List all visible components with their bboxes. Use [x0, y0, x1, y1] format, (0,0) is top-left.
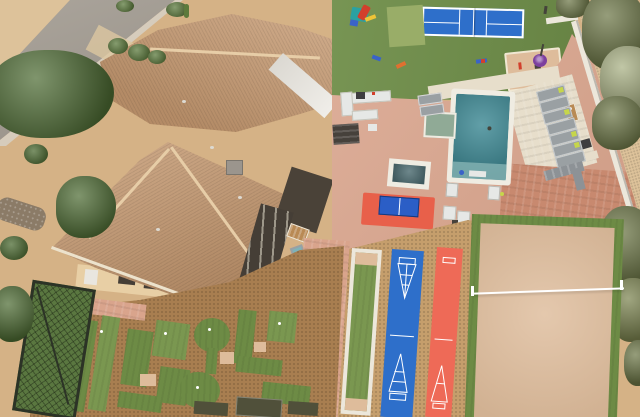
golf-ball: [196, 386, 199, 389]
putting-green: [267, 311, 298, 344]
towel: [574, 142, 580, 148]
sport-pad: [387, 5, 426, 47]
grill: [356, 92, 365, 99]
pool-ledge-bench: [469, 170, 486, 177]
pickleball-court: [422, 7, 525, 39]
lawn-toy: [481, 59, 485, 63]
roof-vent: [210, 146, 214, 149]
house-door: [84, 269, 98, 285]
sand-volleyball-court: [465, 214, 624, 417]
sand-trap: [254, 342, 266, 352]
sand-trap: [140, 374, 156, 386]
play-toy: [518, 62, 522, 69]
desert-tree-large: [0, 50, 114, 138]
golf-ball: [278, 322, 281, 325]
putting-green: [152, 320, 191, 360]
desert-tree: [592, 96, 640, 150]
volleyball-net-post: [620, 280, 623, 290]
play-structure-step: [350, 19, 359, 26]
towel: [558, 87, 564, 93]
golf-ball: [208, 328, 211, 331]
outdoor-sofa-dark: [332, 123, 359, 145]
hot-tub-water: [392, 164, 425, 185]
putting-green-stem: [205, 348, 218, 375]
bar-counter: [352, 109, 379, 121]
desert-tree: [624, 340, 640, 386]
golf-ball: [164, 332, 167, 335]
volleyball-sand: [474, 223, 615, 417]
pool-lounge-chair: [488, 186, 501, 201]
roof-vent: [182, 100, 186, 103]
dark-mat: [235, 396, 282, 417]
roof-vent: [238, 196, 242, 199]
bocce-end-zone: [345, 398, 368, 412]
aerial-photo-backyard-estate: [0, 0, 640, 417]
coffee-table: [368, 124, 377, 131]
pool-toy: [500, 192, 504, 196]
bocce-end-zone: [355, 252, 378, 266]
towel: [564, 109, 570, 115]
cube-chair: [443, 206, 457, 221]
shrub: [0, 236, 28, 260]
ping-pong-net: [398, 198, 400, 215]
chimney: [226, 160, 243, 175]
shrub: [116, 0, 134, 12]
golf-ball: [100, 330, 103, 333]
counter-item: [372, 92, 375, 95]
towel: [571, 131, 577, 137]
shrub: [148, 50, 166, 64]
swimming-pool: [447, 88, 516, 185]
hot-tub: [387, 158, 431, 190]
play-umbrella: [533, 54, 547, 67]
dark-mat: [194, 401, 229, 416]
shrub: [128, 44, 150, 61]
volleyball-net-post: [471, 286, 474, 296]
putting-green-circle: [194, 318, 230, 352]
sand-trap: [220, 352, 234, 364]
shrub: [24, 144, 48, 164]
ping-pong-table: [378, 196, 419, 218]
dark-mat: [288, 401, 319, 416]
shrub: [108, 38, 128, 54]
rock-bed: [0, 195, 48, 233]
saguaro-cactus: [184, 4, 189, 18]
roof-vent: [156, 228, 160, 231]
pool-lounge-chair: [446, 183, 459, 198]
